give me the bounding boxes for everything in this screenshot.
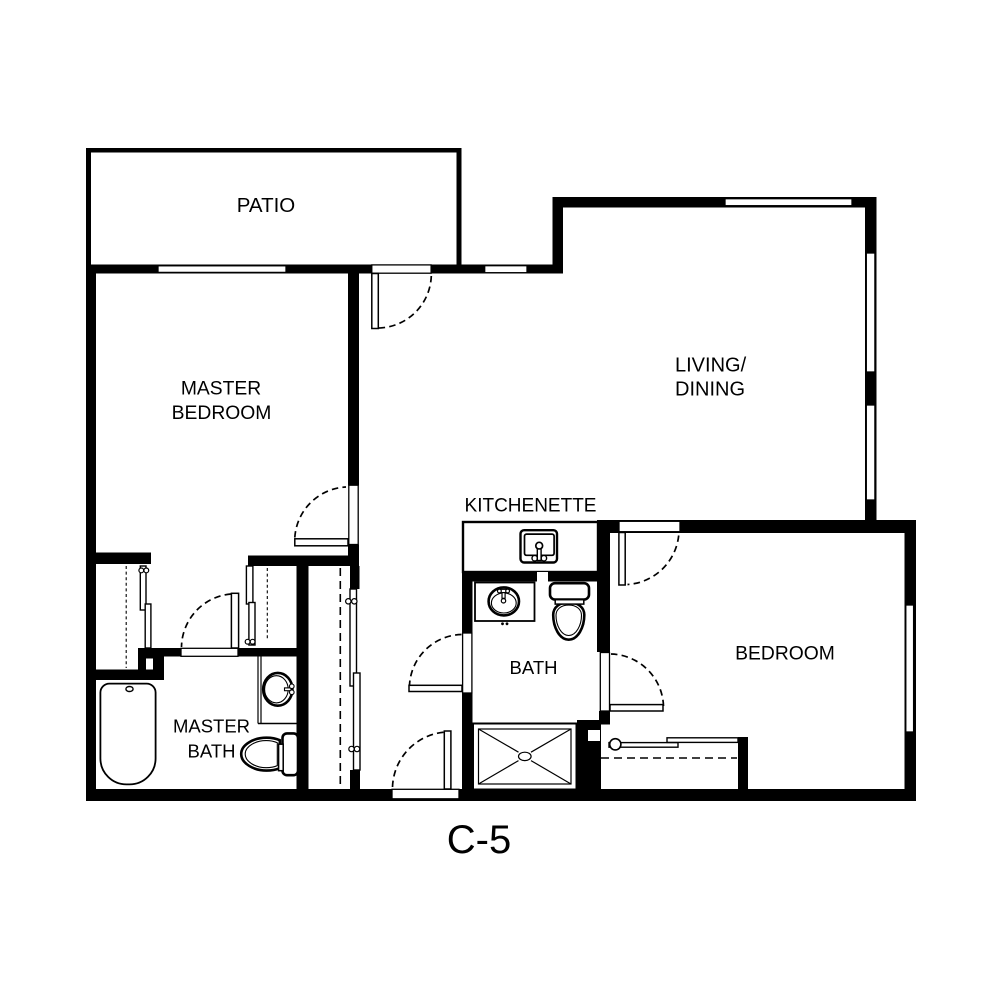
svg-text:BEDROOM: BEDROOM (735, 644, 835, 665)
svg-text:DINING: DINING (675, 379, 745, 401)
svg-text:PATIO: PATIO (237, 194, 295, 217)
svg-text:BATH: BATH (188, 741, 236, 762)
svg-text:LIVING/: LIVING/ (675, 355, 747, 377)
svg-text:MASTER: MASTER (181, 379, 261, 400)
svg-text:C-5: C-5 (447, 818, 511, 862)
svg-text:BEDROOM: BEDROOM (172, 403, 272, 424)
svg-text:BATH: BATH (510, 657, 558, 678)
svg-text:KITCHENETTE: KITCHENETTE (465, 496, 597, 517)
svg-text:MASTER: MASTER (173, 716, 250, 737)
